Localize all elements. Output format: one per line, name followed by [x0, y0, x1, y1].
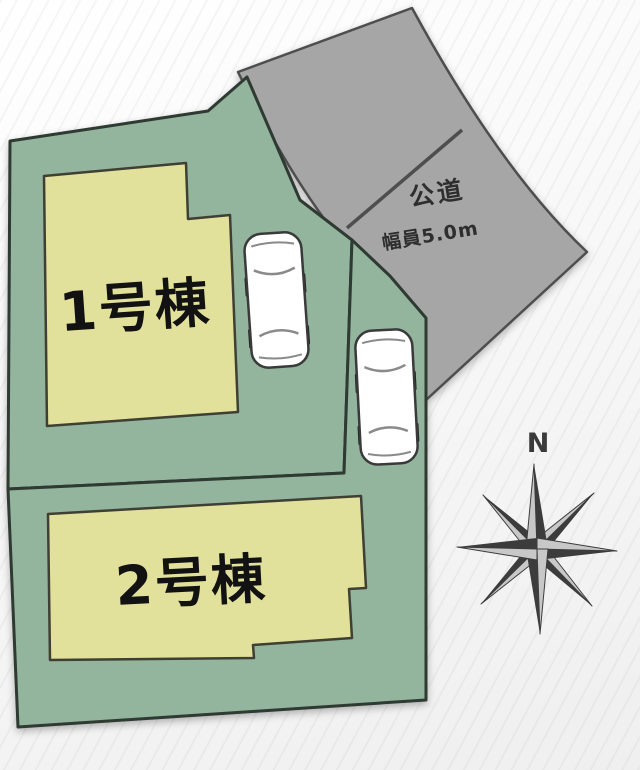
- north-label: N: [527, 428, 550, 459]
- building-1-label: 1号棟: [57, 271, 213, 344]
- compass-rose-icon: [457, 464, 617, 634]
- site-plan-drawing: 1号棟 2号棟 公道 幅員5.0m N: [0, 0, 640, 770]
- building-2-label: 2号棟: [114, 547, 269, 618]
- car-top-view-icon: [241, 231, 311, 369]
- site-plan-canvas: 1号棟 2号棟 公道 幅員5.0m N: [0, 0, 640, 770]
- car-top-view-icon: [353, 328, 421, 465]
